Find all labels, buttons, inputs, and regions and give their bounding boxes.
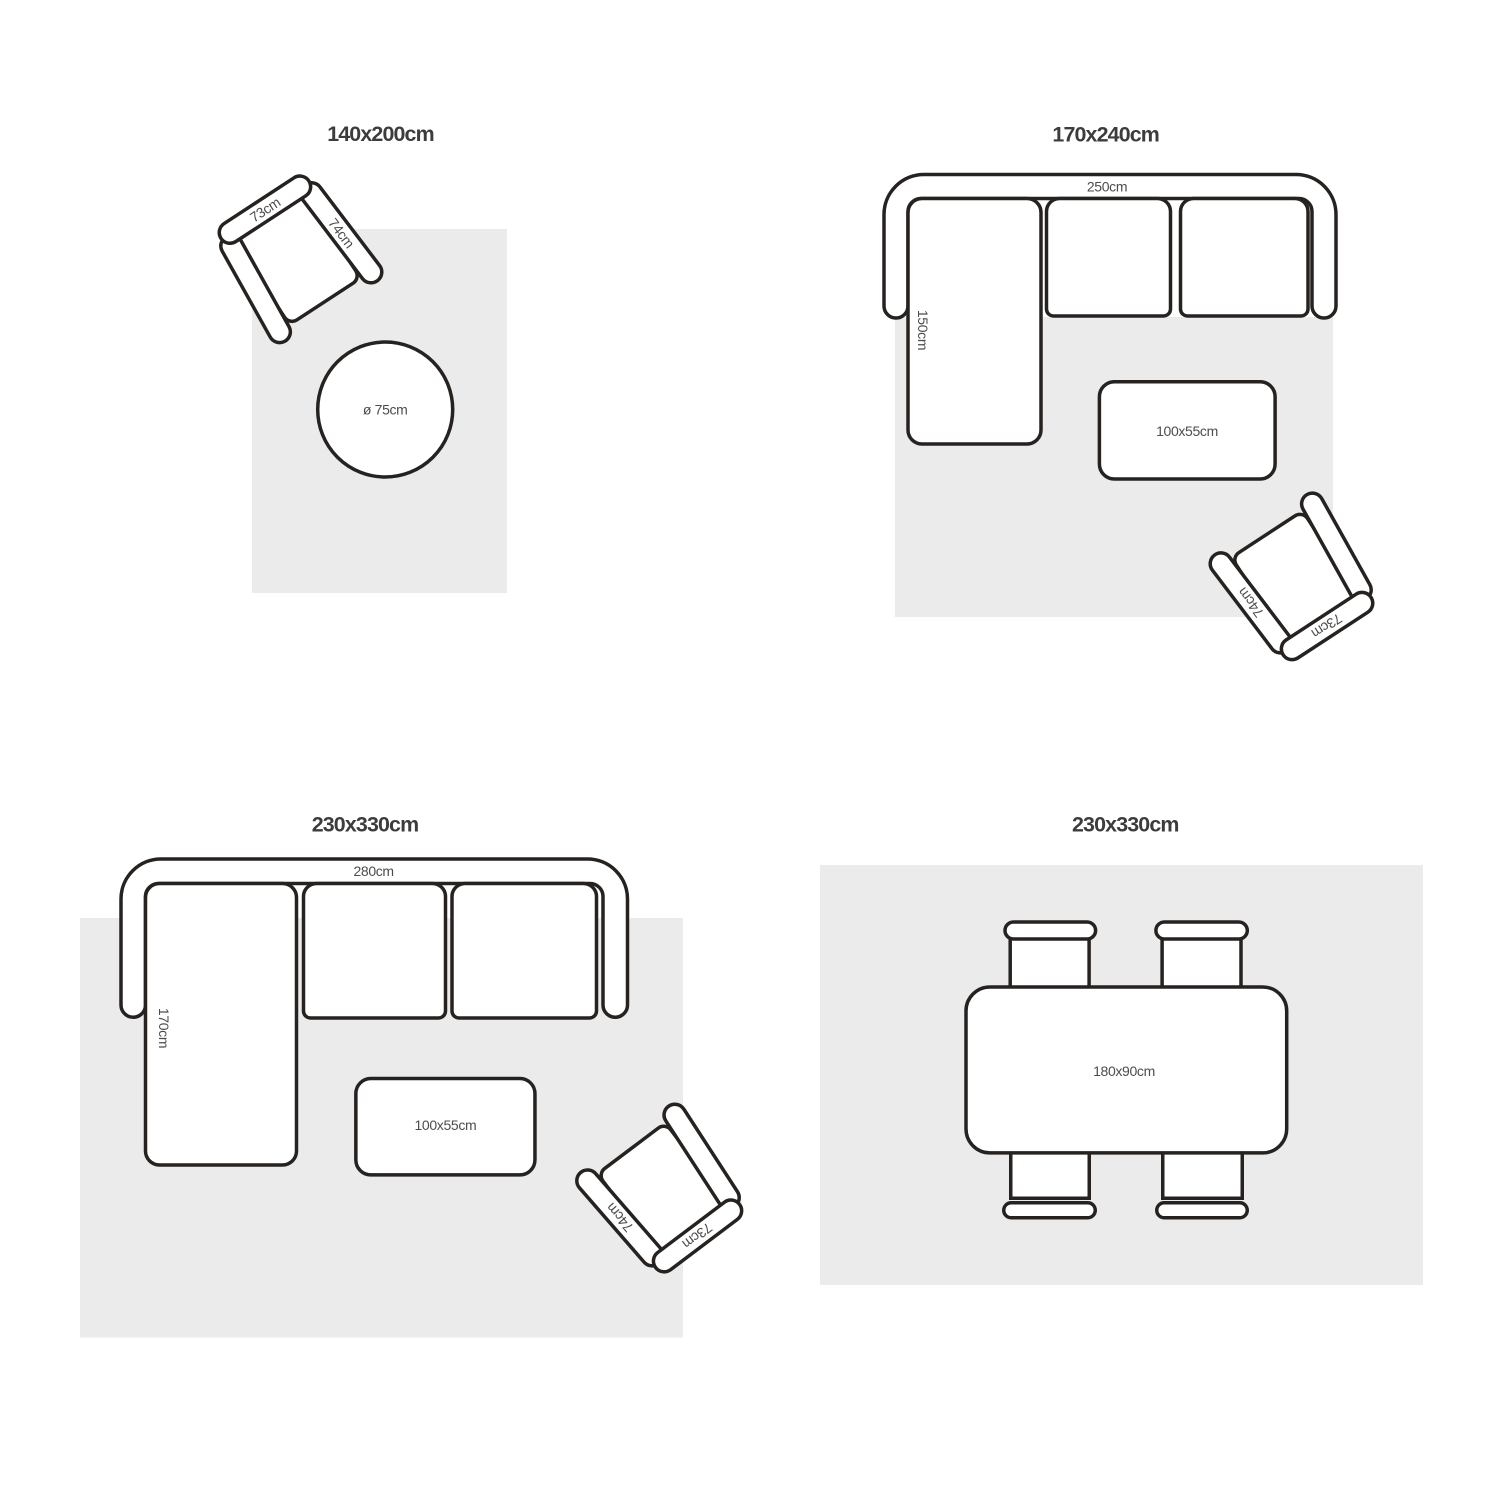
svg-text:100x55cm: 100x55cm xyxy=(415,1117,477,1133)
svg-text:170x240cm: 170x240cm xyxy=(1052,123,1159,147)
svg-text:230x330cm: 230x330cm xyxy=(312,813,419,837)
svg-text:100x55cm: 100x55cm xyxy=(1156,423,1218,439)
svg-text:250cm: 250cm xyxy=(1087,179,1127,195)
svg-text:170cm: 170cm xyxy=(156,1008,172,1048)
svg-text:140x200cm: 140x200cm xyxy=(327,122,434,146)
svg-text:230x330cm: 230x330cm xyxy=(1072,813,1179,837)
svg-text:150cm: 150cm xyxy=(915,310,931,350)
svg-text:ø 75cm: ø 75cm xyxy=(363,402,408,418)
svg-text:180x90cm: 180x90cm xyxy=(1093,1063,1155,1079)
svg-text:280cm: 280cm xyxy=(353,863,393,879)
